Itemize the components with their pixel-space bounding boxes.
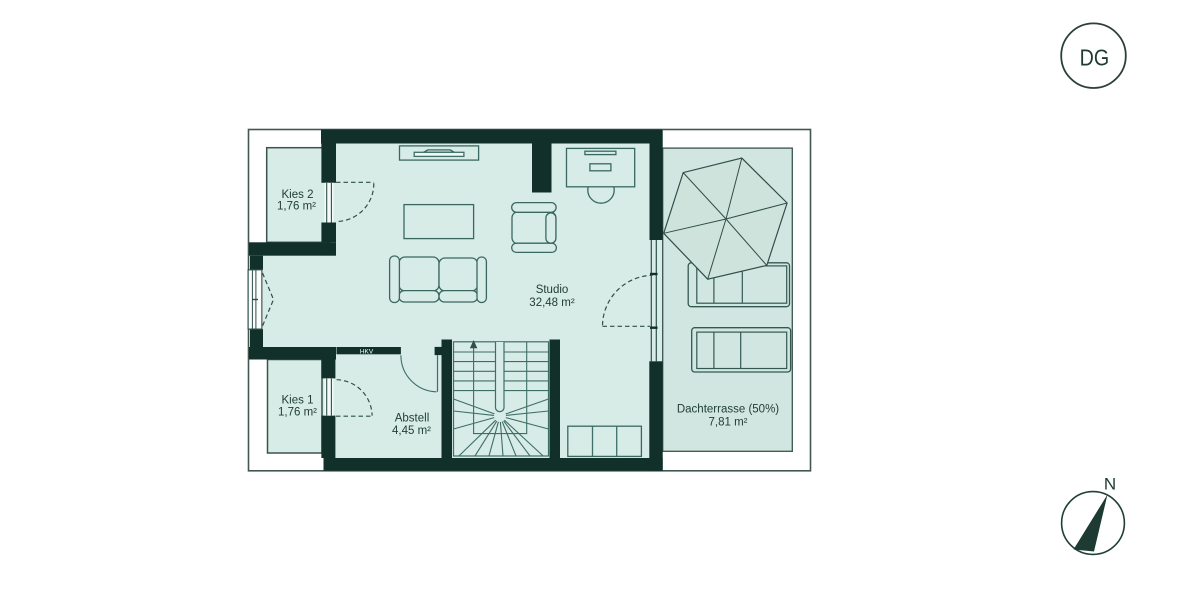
svg-text:Abstell: Abstell: [395, 412, 430, 424]
svg-text:N: N: [1104, 475, 1116, 494]
svg-text:32,48 m²: 32,48 m²: [529, 297, 575, 309]
svg-text:HKV: HKV: [360, 348, 374, 355]
svg-text:Dachterrasse (50%): Dachterrasse (50%): [677, 403, 779, 415]
svg-text:Studio: Studio: [536, 284, 569, 296]
svg-text:1,76 m²: 1,76 m²: [277, 200, 316, 212]
svg-text:DG: DG: [1080, 45, 1110, 71]
svg-text:Kies 2: Kies 2: [282, 189, 314, 201]
svg-text:4,45 m²: 4,45 m²: [392, 425, 431, 437]
svg-text:7,81 m²: 7,81 m²: [709, 416, 748, 428]
svg-text:Kies 1: Kies 1: [282, 395, 314, 407]
svg-text:1,76 m²: 1,76 m²: [278, 407, 317, 419]
